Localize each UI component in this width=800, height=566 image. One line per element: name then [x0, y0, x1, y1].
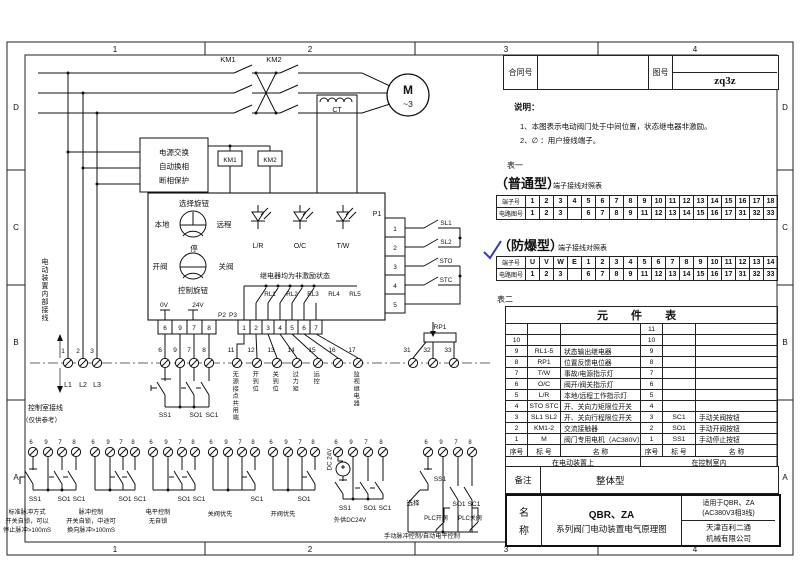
- svg-text:关阀优先: 关阀优先: [208, 510, 233, 518]
- room-wiring-label: 控制室接线: [28, 403, 63, 413]
- putong-subheading: 端子接线对照表: [553, 181, 602, 191]
- svg-text:9: 9: [44, 440, 48, 446]
- wiper-arrow-icon: [430, 331, 436, 337]
- element-row: 8RP1位置反馈电位器8: [506, 357, 778, 368]
- power-box-line2: 自动换相: [159, 161, 189, 171]
- sc1-label: SC1: [206, 412, 219, 419]
- svg-text:7: 7: [178, 440, 182, 446]
- motor-label: M: [403, 83, 413, 97]
- svg-text:选择: 选择: [407, 498, 421, 507]
- motor-phase-label: ~3: [403, 99, 413, 109]
- svg-text:7: 7: [119, 440, 123, 446]
- svg-text:SC1: SC1: [193, 496, 206, 503]
- lamp-lr-label: L/R: [253, 243, 264, 250]
- element-row: 1M阀门专用电机（AC380V）1SS1手动停止按钮: [506, 434, 778, 445]
- svg-text:8: 8: [131, 440, 135, 446]
- note-line-2: 2、∅ ：用户接线端子。: [520, 135, 600, 146]
- t12: 12: [247, 347, 255, 354]
- group-captions: 标准脉冲方式开关自锁，可以停止脉冲>100mS 脉冲控制开关自锁，中途可换向脉冲…: [3, 508, 460, 540]
- control-knob: [180, 253, 206, 279]
- svg-text:9: 9: [349, 440, 353, 446]
- zone-top-3: 3: [504, 45, 509, 54]
- t3: 3: [90, 348, 94, 355]
- table1-label: 表一: [507, 160, 523, 171]
- contract-label: 合同号: [504, 56, 538, 89]
- svg-text:SC1: SC1: [251, 496, 264, 503]
- t32: 32: [423, 347, 431, 354]
- terminal15-function-label: 远控: [312, 371, 318, 385]
- svg-text:6: 6: [91, 440, 95, 446]
- svg-text:SO1: SO1: [57, 496, 70, 503]
- remarks-value: 整体型: [541, 467, 778, 493]
- p3-cell-2: 2: [254, 325, 258, 332]
- t1: 1: [61, 348, 65, 355]
- indicator-lamps: [251, 205, 356, 229]
- p1-cell-3: 3: [393, 264, 397, 271]
- element-row: 9RL1-5状态输出继电器9: [506, 346, 778, 357]
- applicable-line1: 适用于QBR、ZA: [702, 498, 754, 508]
- remarks-label: 备注: [506, 467, 541, 493]
- control-knob-title: 控制旋钮: [178, 285, 208, 295]
- svg-text:无自锁: 无自锁: [149, 517, 168, 525]
- putong-heading: （普通型）: [495, 173, 560, 192]
- km1-contact-label: KM1: [220, 55, 235, 64]
- svg-text:脉冲控制: 脉冲控制: [79, 508, 104, 516]
- svg-text:SS1: SS1: [339, 505, 352, 512]
- sl2-label: SL2: [440, 239, 452, 246]
- p3-cell-4: 4: [278, 325, 282, 332]
- svg-text:8: 8: [72, 440, 76, 446]
- relay-note: 继电器均为非激励状态: [260, 271, 330, 280]
- km2-contact-label: KM2: [266, 55, 281, 64]
- relay-contacts: [244, 285, 357, 321]
- t14: 14: [287, 347, 295, 354]
- sto-label: STO: [440, 258, 453, 265]
- p2-label: P2: [218, 312, 226, 319]
- rl4-label: RL4: [328, 291, 340, 298]
- putong-circuit-row: 电路图号123678911121314151617313233: [497, 208, 778, 220]
- svg-text:7: 7: [454, 440, 458, 446]
- fangbao-circuit-row: 电路图号123678911121314151617313233: [497, 269, 778, 281]
- element-row: 6O/C阀开/阀关指示灯6: [506, 379, 778, 390]
- drawing-title: 系列阀门电动装置电气原理图: [556, 523, 667, 535]
- zone-left-b: B: [13, 338, 18, 347]
- fangbao-heading: （防爆型）: [498, 235, 563, 254]
- zone-bottom-1: 1: [113, 545, 118, 554]
- power-box-line3: 断相保护: [159, 175, 189, 185]
- arrow-up-icon: [57, 334, 63, 341]
- open-valve-label: 开阀: [153, 262, 168, 271]
- reference-note: （仅供参考）: [22, 414, 61, 424]
- p2-cell-9: 9: [178, 325, 182, 332]
- terminal17-function-label: 监视继电器: [352, 371, 358, 407]
- svg-text:6: 6: [209, 440, 213, 446]
- zone-left-d: D: [13, 103, 19, 112]
- p1-cell-2: 2: [393, 245, 397, 252]
- name-label-bottom: 称: [519, 522, 529, 537]
- terminal11-function-label: 无源接点共用端: [231, 371, 237, 421]
- p3-cell-6: 6: [302, 325, 306, 332]
- p2-cell-6: 6: [163, 325, 167, 332]
- drawing-no-label: 图号: [649, 56, 673, 89]
- drawing-page: 1 2 3 4 1 2 3 4 D C B A D C B A KM1 KM2 …: [0, 0, 800, 566]
- svg-text:电平控制: 电平控制: [146, 508, 171, 516]
- rl5-label: RL5: [349, 291, 361, 298]
- svg-text:SC1: SC1: [134, 496, 147, 503]
- svg-text:开阀优先: 开阀优先: [271, 510, 296, 518]
- product-model: QBR、ZA: [589, 506, 635, 521]
- company-line1: 天津百利二通: [706, 522, 751, 533]
- zone-bottom-2: 2: [308, 545, 313, 554]
- t2: 2: [76, 348, 80, 355]
- zone-top-2: 2: [308, 45, 313, 54]
- applicable-line2: (AC380V3相3线): [702, 508, 755, 518]
- svg-text:9: 9: [284, 440, 288, 446]
- element-row: 5L/R本地/远程工作指示灯5: [506, 390, 778, 401]
- svg-text:9: 9: [164, 440, 168, 446]
- terminal14-function-label: 过力矩: [291, 371, 297, 393]
- svg-text:8: 8: [191, 440, 195, 446]
- note-line-1: 1、本图表示电动阀门处于中间位置，状态继电器非激励。: [520, 121, 712, 132]
- p2-cell-7: 7: [192, 325, 196, 332]
- p3-cell-5: 5: [290, 325, 294, 332]
- selector-knob-title: 选择旋钮: [179, 198, 209, 208]
- name-label-top: 名: [519, 504, 529, 519]
- terminal12-function-label: 开到位: [251, 371, 257, 393]
- t7: 7: [187, 347, 191, 354]
- t15: 15: [308, 347, 316, 354]
- lamp-oc-label: O/C: [294, 243, 306, 250]
- element-table-label: 表二: [497, 294, 513, 305]
- t9: 9: [173, 347, 177, 354]
- svg-text:9: 9: [224, 440, 228, 446]
- t16: 16: [328, 347, 336, 354]
- company-line2: 机械有限公司: [706, 533, 751, 544]
- p3-cell-1: 1: [242, 325, 246, 332]
- svg-text:8: 8: [468, 440, 472, 446]
- svg-text:SS1: SS1: [29, 496, 42, 503]
- zone-top-4: 4: [693, 45, 698, 54]
- element-row: 7T/W事故/电源指示灯7: [506, 368, 778, 379]
- element-row: 1010: [506, 335, 778, 346]
- svg-text:6: 6: [29, 440, 33, 446]
- t11: 11: [228, 347, 235, 354]
- p2-cell-8: 8: [207, 325, 211, 332]
- v24-label: 24V: [192, 302, 204, 309]
- rl2-label: RL2: [286, 291, 298, 298]
- zone-left-c: C: [13, 223, 19, 232]
- p3-label: P3: [229, 312, 237, 319]
- svg-text:PLC开阀: PLC开阀: [424, 514, 448, 522]
- rl3-label: RL3: [307, 291, 319, 298]
- element-table-title-row: 元 件 表: [506, 307, 778, 324]
- local-label: 本地: [155, 219, 170, 229]
- svg-text:换向脉冲>100mS: 换向脉冲>100mS: [67, 526, 115, 534]
- svg-text:SO1: SO1: [177, 496, 190, 503]
- dc24v-label: DC 24V: [327, 440, 334, 480]
- inner-wiring-label: 电动装置内部接线: [41, 258, 48, 322]
- rl1-label: RL1: [264, 291, 276, 298]
- svg-text:停止脉冲>100mS: 停止脉冲>100mS: [3, 526, 51, 534]
- putong-terminal-row: 端子号123456789101112131415161718: [497, 196, 778, 208]
- fangbao-terminal-row: 端子号UVWE1234567891011121314: [497, 257, 778, 269]
- t6: 6: [158, 347, 162, 354]
- t31: 31: [403, 347, 411, 354]
- drawing-no-empty: [673, 56, 777, 73]
- p1-label: P1: [373, 211, 382, 218]
- contract-value: [538, 56, 649, 89]
- element-row: 11: [506, 324, 778, 335]
- p1-cell-1: 1: [393, 226, 397, 233]
- svg-text:SC1: SC1: [468, 501, 481, 508]
- l2-label: L2: [79, 382, 87, 389]
- p3-cell-7: 7: [314, 325, 318, 332]
- zone-right-c: C: [782, 223, 788, 232]
- element-row: 3SL1 SL2开、关向行程限位开关3SC1手动关阀按钮: [506, 412, 778, 423]
- svg-text:7: 7: [58, 440, 62, 446]
- svg-text:8: 8: [251, 440, 255, 446]
- svg-text:SC1: SC1: [379, 505, 392, 512]
- zone-right-a: A: [782, 473, 788, 482]
- lamp-tw-label: T/W: [337, 243, 350, 250]
- svg-text:开关自锁，中途可: 开关自锁，中途可: [66, 517, 116, 525]
- svg-text:PLC关阀: PLC关阀: [458, 514, 482, 522]
- ss1-label: SS1: [159, 412, 172, 419]
- svg-text:外供DC24V: 外供DC24V: [334, 516, 367, 524]
- t33: 33: [444, 347, 452, 354]
- arrow-down-icon: [57, 386, 63, 393]
- t8: 8: [202, 347, 206, 354]
- so1-label: SO1: [189, 412, 202, 419]
- element-table: 元 件 表 11 1010 9RL1-5状态输出继电器9 8RP1位置反馈电位器…: [505, 306, 778, 470]
- svg-text:开关自锁，可以: 开关自锁，可以: [5, 517, 48, 525]
- svg-text:SS1: SS1: [434, 476, 447, 483]
- svg-text:7: 7: [364, 440, 368, 446]
- p3-cell-3: 3: [266, 325, 270, 332]
- svg-text:8: 8: [311, 440, 315, 446]
- svg-text:6: 6: [149, 440, 153, 446]
- l1-label: L1: [64, 382, 72, 389]
- fangbao-terminal-table: 端子号UVWE1234567891011121314 电路图号123678911…: [496, 256, 778, 281]
- putong-terminal-table: 端子号123456789101112131415161718 电路图号12367…: [496, 195, 778, 220]
- element-header-row: 序号标 号名 称序号标 号名 称: [506, 445, 778, 457]
- svg-text:SC1: SC1: [73, 496, 86, 503]
- group-terminal-numbers: 6978 6978 6978 6978 6978 6978 6978: [29, 440, 472, 446]
- notes-heading: 说明：: [514, 101, 540, 113]
- local-button-network: [151, 368, 209, 409]
- power-box-line1: 电源交换: [159, 147, 189, 157]
- drawing-no-value: zq3z: [673, 73, 777, 89]
- t17: 17: [348, 347, 356, 354]
- v0-label: 0V: [160, 302, 169, 309]
- element-row: 4STO STC开、关向力矩限位开关4: [506, 401, 778, 412]
- ct-label: CT: [332, 107, 342, 114]
- svg-text:SO1: SO1: [452, 501, 465, 508]
- svg-text:7: 7: [238, 440, 242, 446]
- svg-text:SO1: SO1: [363, 505, 376, 512]
- sl1-label: SL1: [440, 220, 452, 227]
- remarks-block: 备注 整体型: [505, 466, 779, 494]
- zone-top-1: 1: [113, 45, 118, 54]
- zone-left-a: A: [13, 473, 19, 482]
- km2-coil-label: KM2: [263, 157, 277, 164]
- t13: 13: [267, 347, 275, 354]
- element-row: 2KM1-2交流接触器2SO1手动开阀按钮: [506, 423, 778, 434]
- svg-text:6: 6: [269, 440, 273, 446]
- fangbao-subheading: 端子接线对照表: [558, 243, 607, 253]
- svg-text:手动脉冲控制/自动电平控制: 手动脉冲控制/自动电平控制: [384, 532, 460, 540]
- stop-label: 停: [190, 243, 198, 253]
- km1-coil-label: KM1: [223, 157, 237, 164]
- svg-text:SO1: SO1: [297, 496, 310, 503]
- l3-label: L3: [93, 382, 101, 389]
- terminal13-function-label: 关到位: [271, 371, 277, 393]
- svg-text:7: 7: [298, 440, 302, 446]
- selector-knob: [180, 211, 206, 237]
- svg-text:6: 6: [424, 440, 428, 446]
- svg-text:标准脉冲方式: 标准脉冲方式: [8, 508, 45, 516]
- p1-cell-5: 5: [393, 302, 397, 309]
- svg-text:9: 9: [439, 440, 443, 446]
- stc-label: STC: [440, 277, 453, 284]
- svg-text:6: 6: [334, 440, 338, 446]
- title-block: 合同号 图号 zq3z: [503, 55, 779, 90]
- svg-text:8: 8: [379, 440, 383, 446]
- svg-text:9: 9: [106, 440, 110, 446]
- zone-right-d: D: [782, 103, 788, 112]
- rp1-label: RP1: [434, 324, 447, 331]
- remote-label: 远程: [217, 220, 232, 229]
- zone-right-b: B: [782, 338, 787, 347]
- svg-text:SO1: SO1: [118, 496, 131, 503]
- close-valve-label: 关阀: [219, 261, 234, 271]
- p1-cell-4: 4: [393, 283, 397, 290]
- name-block: 名 称 QBR、ZA 系列阀门电动装置电气原理图 适用于QBR、ZA (AC38…: [505, 494, 781, 547]
